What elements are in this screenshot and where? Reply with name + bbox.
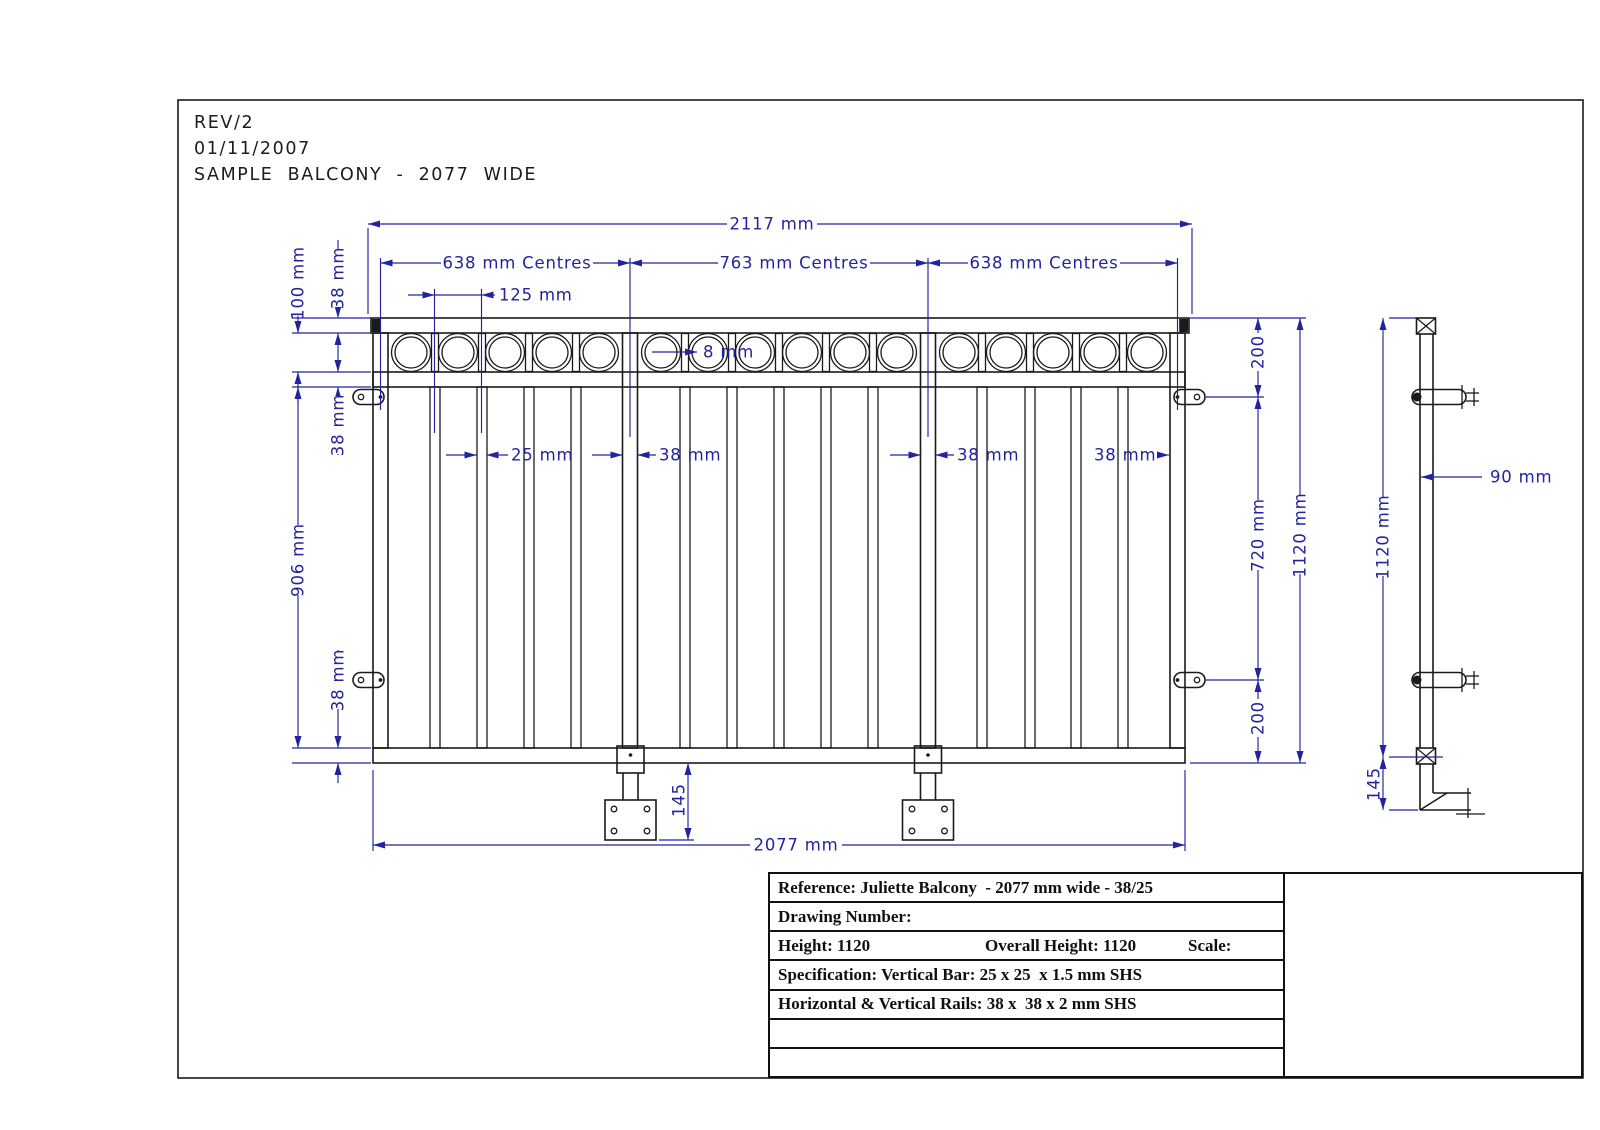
- spigot-mount-right: [903, 746, 954, 840]
- frieze-rings: [392, 334, 1167, 372]
- svg-text:2077 mm: 2077 mm: [754, 836, 839, 855]
- ring: [1034, 334, 1073, 372]
- baluster: [1071, 387, 1081, 748]
- rails-label: Horizontal & Vertical Rails: 38 x 38 x 2…: [778, 994, 1136, 1014]
- baluster: [1025, 387, 1035, 748]
- baluster: [727, 387, 737, 748]
- wall-lugs: [353, 390, 1205, 688]
- spigot-mount-left: [605, 746, 656, 840]
- ring: [392, 334, 431, 372]
- dim-handrail-depth: 90 mm: [1490, 468, 1552, 487]
- balusters: [430, 387, 1128, 748]
- specification-label: Specification: Vertical Bar: 25 x 25 x 1…: [778, 965, 1142, 985]
- dim-ring-wall: 8 mm: [703, 343, 754, 362]
- ring: [1081, 334, 1120, 372]
- revision-label: REV/2: [194, 110, 537, 136]
- title-block-row-reference: Reference: Juliette Balcony - 2077 mm wi…: [770, 874, 1283, 903]
- baluster: [774, 387, 784, 748]
- baluster: [430, 387, 440, 748]
- title-block-divider: [1283, 874, 1285, 1076]
- top-rail: [371, 318, 1189, 333]
- title-block-row-specification: Specification: Vertical Bar: 25 x 25 x 1…: [770, 961, 1283, 990]
- reference-label: Reference: Juliette Balcony - 2077 mm wi…: [778, 878, 1153, 898]
- frieze-spacer: [526, 334, 533, 372]
- title-block: Reference: Juliette Balcony - 2077 mm wi…: [768, 872, 1583, 1078]
- dim-overall-height: 1120 mm: [1291, 493, 1310, 578]
- dim-top-fixing-offset: 200: [1249, 333, 1268, 371]
- drawing-title: SAMPLE BALCONY - 2077 WIDE: [194, 162, 537, 188]
- ring: [439, 334, 478, 372]
- svg-text:38 mm: 38 mm: [329, 247, 348, 309]
- dim-baluster-width: 25 mm: [511, 446, 573, 465]
- weld-box-bottom: [1417, 748, 1436, 764]
- baluster: [477, 387, 487, 748]
- svg-text:38 mm: 38 mm: [329, 394, 348, 456]
- svg-text:2117 mm: 2117 mm: [730, 215, 815, 234]
- svg-text:145: 145: [1365, 767, 1384, 801]
- overall-height-label: Overall Height: 1120: [985, 932, 1136, 959]
- svg-text:200: 200: [1249, 335, 1268, 369]
- ring: [940, 334, 979, 372]
- dim-upright-width-right: 38 mm: [957, 446, 1019, 465]
- frieze-spacer: [979, 334, 986, 372]
- dim-spigot-length: 145: [670, 783, 689, 817]
- scale-label: Scale:: [1188, 932, 1231, 959]
- title-block-row-drawing-number: Drawing Number:: [770, 903, 1283, 932]
- frieze-spacer: [776, 334, 783, 372]
- frieze-spacer: [1027, 334, 1034, 372]
- drawing-number-label: Drawing Number:: [778, 907, 912, 927]
- svg-text:638 mm Centres: 638 mm Centres: [969, 254, 1118, 273]
- ring: [831, 334, 870, 372]
- dim-side-overall-height: 1120 mm: [1374, 495, 1393, 580]
- wall-bracket-bottom: [1412, 668, 1479, 692]
- wall-lug-top-left: [353, 390, 384, 405]
- dim-bottom-fixing-offset: 200: [1249, 699, 1268, 737]
- title-block-row-height: Height: 1120 Overall Height: 1120 Scale:: [770, 932, 1283, 961]
- drawing-sheet: 2117 mm 638 mm Centres 763 mm Centres 63…: [0, 0, 1600, 1130]
- dim-end-post-width: 38 mm: [1094, 446, 1156, 465]
- bottom-rail: [373, 748, 1185, 763]
- title-block-row-rails: Horizontal & Vertical Rails: 38 x 38 x 2…: [770, 991, 1283, 1020]
- title-block-row-empty-1: [770, 1020, 1283, 1049]
- svg-text:100 mm: 100 mm: [289, 246, 308, 320]
- dim-bottom-rail: 38 mm: [329, 649, 348, 711]
- title-block-rows: Reference: Juliette Balcony - 2077 mm wi…: [770, 874, 1283, 1076]
- svg-text:38 mm: 38 mm: [329, 649, 348, 711]
- frieze-spacer: [573, 334, 580, 372]
- dim-centres-right: 638 mm Centres: [968, 254, 1120, 273]
- svg-text:200: 200: [1249, 701, 1268, 735]
- baluster: [868, 387, 878, 748]
- frieze-spacer: [870, 334, 877, 372]
- svg-text:720 mm: 720 mm: [1249, 498, 1268, 572]
- dim-centres-mid: 763 mm Centres: [718, 254, 870, 273]
- dim-mid-rail: 38 mm: [329, 394, 348, 456]
- title-block-row-empty-2: [770, 1049, 1283, 1076]
- mid-rail: [373, 372, 1185, 387]
- dim-band-height: 100 mm: [289, 246, 308, 320]
- side-foot: [1420, 764, 1485, 818]
- baluster: [821, 387, 831, 748]
- front-view: [353, 318, 1205, 840]
- dim-side-foot-length: 145: [1365, 767, 1384, 801]
- top-rail-end-cap-left: [372, 319, 381, 332]
- side-view: [1412, 318, 1485, 818]
- svg-text:145: 145: [670, 783, 689, 817]
- frieze-spacer: [1073, 334, 1080, 372]
- ring: [1128, 334, 1167, 372]
- baluster: [571, 387, 581, 748]
- ring: [580, 334, 619, 372]
- wall-bracket-top: [1412, 385, 1479, 409]
- baluster: [1118, 387, 1128, 748]
- wall-lug-bottom-right: [1174, 673, 1205, 688]
- drawing-header: REV/2 01/11/2007 SAMPLE BALCONY - 2077 W…: [194, 110, 537, 188]
- dim-overall-width-top: 2117 mm: [727, 215, 817, 234]
- height-label: Height: 1120: [778, 936, 870, 956]
- dim-infill-height: 906 mm: [289, 523, 308, 597]
- svg-text:1120 mm: 1120 mm: [1374, 495, 1393, 580]
- svg-text:906 mm: 906 mm: [289, 523, 308, 597]
- svg-text:1120 mm: 1120 mm: [1291, 493, 1310, 578]
- baluster: [680, 387, 690, 748]
- ring: [878, 334, 917, 372]
- dim-fixing-spacing: 720 mm: [1249, 498, 1268, 572]
- svg-text:763 mm Centres: 763 mm Centres: [719, 254, 868, 273]
- ring: [533, 334, 572, 372]
- dim-centres-left: 638 mm Centres: [441, 254, 593, 273]
- date-label: 01/11/2007: [194, 136, 537, 162]
- wall-lug-top-right: [1174, 390, 1205, 405]
- weld-box-top: [1417, 318, 1436, 334]
- ring: [987, 334, 1026, 372]
- dim-top-rail: 38 mm: [329, 247, 348, 309]
- top-rail-end-cap-right: [1179, 319, 1188, 332]
- ring: [486, 334, 525, 372]
- wall-lug-bottom-left: [353, 673, 384, 688]
- dim-upright-width-left: 38 mm: [659, 446, 721, 465]
- baluster: [524, 387, 534, 748]
- frieze-spacer: [1120, 334, 1127, 372]
- dim-bar-pitch: 125 mm: [499, 286, 573, 305]
- svg-text:638 mm Centres: 638 mm Centres: [442, 254, 591, 273]
- frieze-spacer: [823, 334, 830, 372]
- baluster: [977, 387, 987, 748]
- dim-overall-width-bottom: 2077 mm: [750, 836, 842, 855]
- ring: [783, 334, 822, 372]
